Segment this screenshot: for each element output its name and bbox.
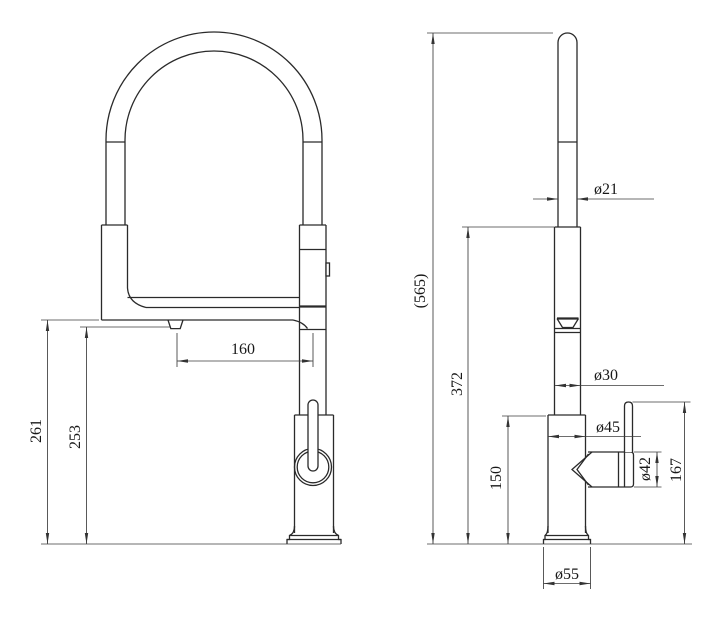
dim-label-height-to-outlet: 253 — [68, 425, 84, 449]
faucet-linework — [0, 0, 720, 620]
handle-lever-side — [625, 402, 633, 452]
dim-label-body-height: 150 — [489, 466, 505, 490]
technical-drawing-canvas: 261 253 160 (565) 372 150 ø21 ø30 ø45 ø4… — [0, 0, 720, 620]
dim-label-hose-diameter: ø21 — [594, 182, 618, 198]
dock-column — [102, 225, 147, 320]
spout-tube-side — [555, 227, 581, 415]
base-side — [544, 526, 591, 544]
dimension-linework-side — [427, 33, 692, 589]
dim-label-body-diameter: ø45 — [596, 420, 620, 436]
dim-label-spout-height: 372 — [450, 372, 466, 396]
dim-label-base-diameter: ø55 — [555, 567, 579, 583]
dim-label-spout-diameter: ø30 — [594, 368, 618, 384]
dim-label-handle-diameter: ø42 — [638, 457, 654, 481]
dim-label-height-to-spout: 261 — [29, 419, 45, 443]
handle-lever-front — [308, 400, 318, 471]
outlet-nozzle — [168, 320, 183, 329]
dim-label-handle-height: 167 — [669, 458, 685, 482]
front-view-drawing — [102, 32, 342, 544]
dim-label-reach: 160 — [231, 342, 255, 358]
spout-arch — [106, 32, 322, 225]
dimension-linework-front — [41, 320, 341, 544]
dim-label-overall-height: (565) — [413, 274, 429, 309]
side-view-drawing — [544, 33, 634, 544]
hose-tube-side — [558, 33, 577, 227]
spray-button — [326, 263, 330, 276]
spray-head-front — [300, 225, 330, 415]
